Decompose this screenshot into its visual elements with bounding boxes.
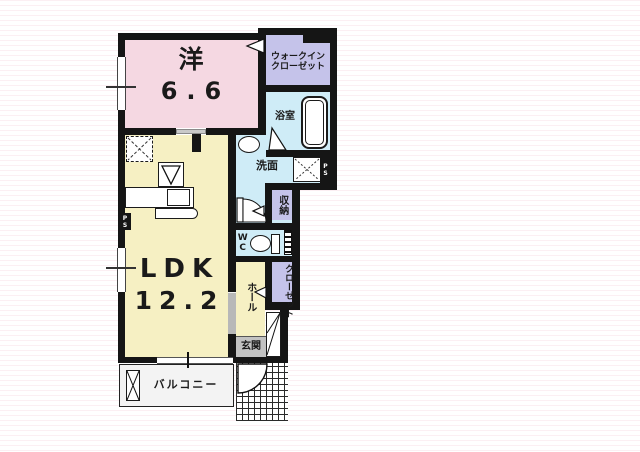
storage-label: 収納 — [272, 191, 292, 219]
window-balcony-tick — [187, 352, 189, 368]
hall-label: ホール — [242, 275, 258, 319]
bathtub — [301, 96, 328, 149]
wall-washroom-wc — [228, 223, 300, 230]
walk-in-closet-label-line2: クローゼット — [264, 62, 332, 72]
entrance-label: 玄関 — [236, 341, 266, 353]
toilet-bowl — [250, 235, 271, 252]
shoe-cabinet — [266, 312, 281, 357]
wall-right-mid — [292, 183, 300, 310]
wall-top-wic — [258, 28, 337, 35]
wall-kitchen-stub — [192, 133, 201, 152]
kitchen-sink — [167, 189, 190, 206]
washing-machine-pan — [293, 157, 321, 182]
wall-wic-bath — [266, 85, 330, 92]
window-western — [117, 57, 126, 110]
closet-label: クローゼット — [272, 264, 293, 301]
bath-label: 浴室 — [265, 111, 305, 123]
western-room-name: 洋 — [126, 46, 256, 75]
wall-washroom-bottom — [265, 183, 337, 190]
western-room-label-block: 洋 6.6 — [126, 46, 256, 105]
wall-left-1 — [118, 33, 125, 57]
balcony-label: バルコニー — [146, 379, 226, 392]
ldk-label-block: LDK 12.2 — [120, 255, 232, 316]
door-track-western-ldk — [176, 129, 206, 134]
pipe-space-left: PS — [118, 213, 131, 230]
ldk-room-name: LDK — [120, 255, 232, 285]
wall-western-ldk-1 — [118, 128, 176, 135]
wall-bottom-1 — [118, 357, 157, 363]
window-wc-louver — [284, 230, 292, 255]
wall-wc-hall — [228, 256, 300, 262]
walk-in-closet-label-line1: ウォークイン — [264, 52, 332, 62]
walk-in-closet-label: ウォークイン クローゼット — [264, 52, 332, 73]
kitchen-counter-end — [155, 208, 198, 219]
refrigerator-space — [126, 136, 153, 162]
wall-hall-closet — [265, 258, 272, 302]
pipe-space-left-label: PS — [122, 215, 128, 229]
wall-storage-left — [265, 183, 272, 223]
wall-top-main — [118, 33, 266, 40]
wash-basin — [238, 136, 260, 153]
wall-bottom-2 — [233, 357, 288, 363]
entrance-porch-tiles — [236, 362, 288, 421]
wc-label: WC — [236, 231, 249, 255]
balcony-equipment-box — [126, 370, 140, 401]
western-room-size: 6.6 — [126, 78, 256, 106]
washroom-label: 洗面 — [245, 160, 289, 173]
window-balcony-sliding — [157, 357, 233, 364]
ldk-room-size: 12.2 — [120, 287, 232, 316]
pipe-space-right: PS — [320, 156, 330, 183]
wall-western-ldk-2 — [206, 128, 266, 135]
floor-plan: PS PS 洋 6.6 ウォー — [0, 0, 640, 452]
pipe-space-right-label: PS — [322, 163, 328, 177]
kitchen-stove — [158, 162, 184, 187]
toilet-tank — [271, 234, 280, 254]
